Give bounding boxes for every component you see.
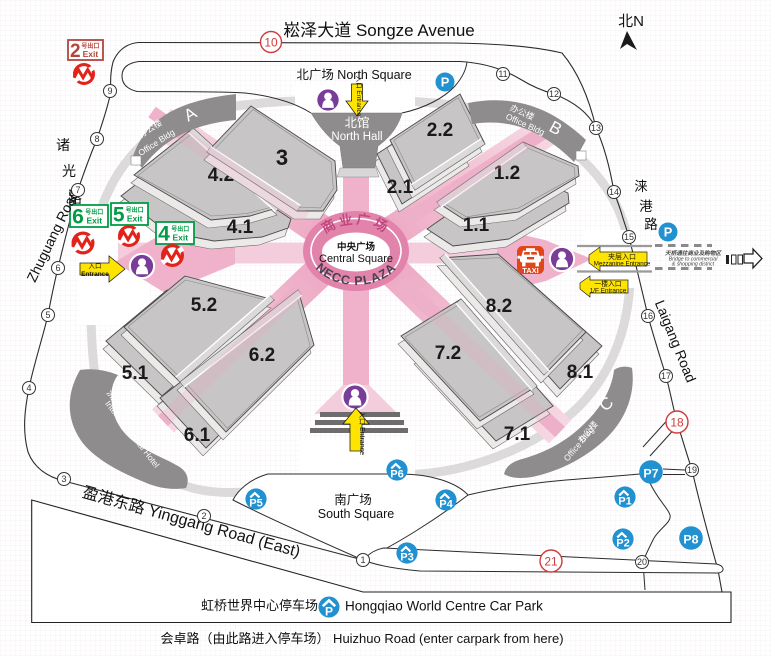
svg-text:2.1: 2.1 [387, 177, 414, 198]
svg-text:Exit: Exit [173, 232, 189, 242]
svg-text:P3: P3 [400, 551, 414, 563]
svg-text:虹桥世界中心停车场: 虹桥世界中心停车场 [201, 598, 318, 613]
svg-text:6.1: 6.1 [184, 425, 211, 446]
svg-text:北N: 北N [618, 13, 644, 30]
svg-text:3: 3 [276, 145, 288, 170]
svg-text:1.1: 1.1 [463, 215, 490, 236]
svg-text:TAXI: TAXI [522, 266, 539, 275]
svg-text:P7: P7 [643, 467, 658, 481]
svg-text:Mezzanine Entrance: Mezzanine Entrance [594, 261, 651, 268]
svg-text:11: 11 [498, 69, 507, 79]
svg-text:7.2: 7.2 [435, 343, 461, 364]
svg-text:21: 21 [544, 554, 558, 568]
svg-text:15: 15 [624, 232, 634, 242]
svg-text:P8: P8 [683, 533, 698, 547]
svg-text:8: 8 [94, 134, 99, 144]
svg-text:P1: P1 [618, 495, 632, 507]
svg-text:港: 港 [639, 199, 653, 214]
svg-text:18: 18 [670, 415, 684, 429]
svg-text:South Square: South Square [318, 507, 394, 521]
svg-text:入口 Entrance: 入口 Entrance [358, 411, 366, 455]
svg-text:9: 9 [107, 86, 112, 96]
svg-text:P: P [441, 75, 450, 90]
svg-text:7: 7 [75, 185, 80, 195]
svg-text:北馆: 北馆 [344, 115, 369, 130]
svg-text:10: 10 [264, 35, 278, 49]
svg-text:5.1: 5.1 [122, 363, 149, 384]
svg-text:4: 4 [26, 383, 31, 393]
svg-text:路: 路 [644, 217, 658, 232]
svg-text:2: 2 [70, 41, 81, 62]
svg-text:5: 5 [113, 204, 125, 227]
svg-text:5: 5 [45, 310, 50, 320]
svg-text:南广场: 南广场 [334, 492, 372, 507]
svg-text:6.2: 6.2 [249, 345, 275, 366]
svg-text:2: 2 [201, 511, 206, 521]
svg-text:北广场 North Square: 北广场 North Square [296, 68, 411, 82]
svg-text:4: 4 [158, 223, 170, 246]
svg-text:会卓路（由此路进入停车场） Huizhuo Road (en: 会卓路（由此路进入停车场） Huizhuo Road (enter carpar… [160, 631, 563, 646]
svg-text:Central Square: Central Square [319, 253, 393, 265]
svg-text:8.1: 8.1 [567, 362, 594, 383]
svg-text:崧泽大道 Songze Avenue: 崧泽大道 Songze Avenue [283, 21, 475, 40]
svg-text:17: 17 [661, 371, 671, 381]
svg-text:入口: 入口 [89, 262, 102, 270]
svg-text:P2: P2 [616, 537, 630, 549]
svg-text:16: 16 [643, 311, 653, 321]
svg-text:P5: P5 [249, 497, 263, 509]
svg-text:诸: 诸 [56, 137, 70, 153]
svg-text:4.1: 4.1 [227, 217, 254, 238]
svg-text:12: 12 [549, 89, 559, 99]
svg-text:19: 19 [687, 465, 697, 475]
svg-text:& shopping district: & shopping district [672, 262, 715, 268]
svg-text:7.1: 7.1 [504, 424, 531, 445]
svg-text:光: 光 [62, 163, 76, 179]
svg-text:涞: 涞 [634, 179, 648, 194]
svg-text:Exit: Exit [87, 215, 103, 225]
svg-text:1/F Entrance: 1/F Entrance [590, 288, 627, 295]
svg-text:P6: P6 [390, 468, 404, 480]
svg-text:6: 6 [55, 263, 60, 273]
svg-text:14: 14 [609, 187, 619, 197]
svg-text:Exit: Exit [127, 213, 143, 223]
svg-text:P: P [325, 605, 333, 619]
svg-text:3: 3 [61, 474, 66, 484]
svg-text:Entrance: Entrance [81, 271, 109, 278]
svg-text:1: 1 [360, 555, 365, 565]
svg-text:Exit: Exit [83, 49, 99, 59]
svg-text:13: 13 [591, 123, 601, 133]
svg-text:8.2: 8.2 [486, 296, 512, 317]
svg-text:中央广场: 中央广场 [337, 241, 376, 253]
svg-text:20: 20 [637, 557, 647, 567]
svg-text:5.2: 5.2 [191, 295, 217, 316]
svg-text:P4: P4 [439, 498, 453, 510]
svg-text:P: P [664, 225, 673, 240]
svg-text:North Hall: North Hall [331, 131, 382, 143]
svg-text:2.2: 2.2 [427, 120, 453, 141]
svg-text:Hongqiao World Centre Car Park: Hongqiao World Centre Car Park [345, 599, 543, 614]
